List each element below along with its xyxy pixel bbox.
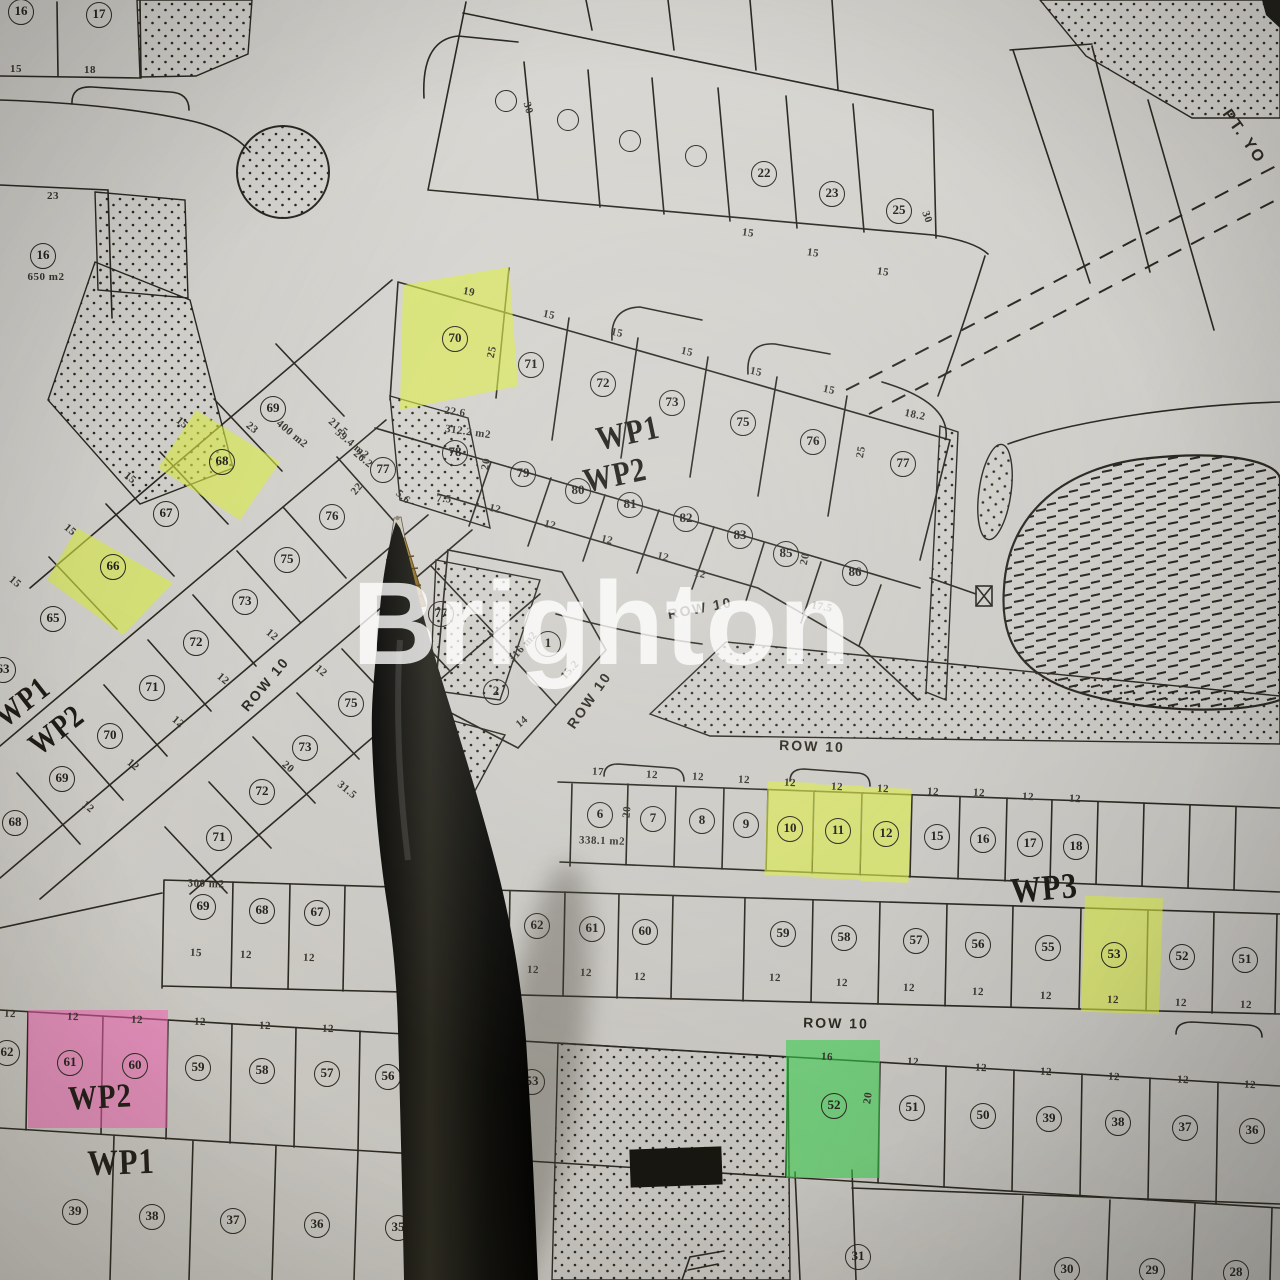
brighton-watermark: Brighton bbox=[352, 556, 852, 692]
site-plan-photo: 1617222325167071727375767778798081828385… bbox=[0, 0, 1280, 1280]
